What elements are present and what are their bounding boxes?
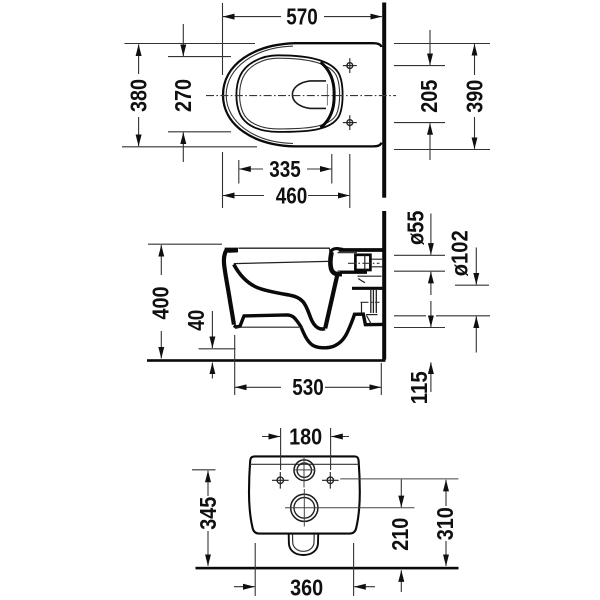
svg-text:530: 530 (292, 374, 324, 400)
svg-text:345: 345 (195, 497, 221, 530)
svg-text:400: 400 (148, 287, 174, 320)
svg-text:390: 390 (462, 80, 488, 113)
svg-text:115: 115 (406, 371, 432, 404)
svg-text:ø102: ø102 (447, 230, 473, 276)
svg-text:380: 380 (126, 79, 152, 112)
svg-text:570: 570 (286, 4, 318, 30)
svg-text:180: 180 (289, 424, 322, 450)
svg-text:270: 270 (170, 79, 196, 112)
svg-text:ø55: ø55 (403, 210, 429, 245)
svg-text:205: 205 (416, 80, 442, 113)
svg-text:460: 460 (276, 182, 308, 208)
svg-text:310: 310 (432, 507, 458, 540)
svg-text:335: 335 (269, 156, 301, 182)
svg-text:40: 40 (183, 310, 209, 331)
svg-text:210: 210 (387, 518, 413, 551)
svg-text:360: 360 (290, 574, 323, 600)
